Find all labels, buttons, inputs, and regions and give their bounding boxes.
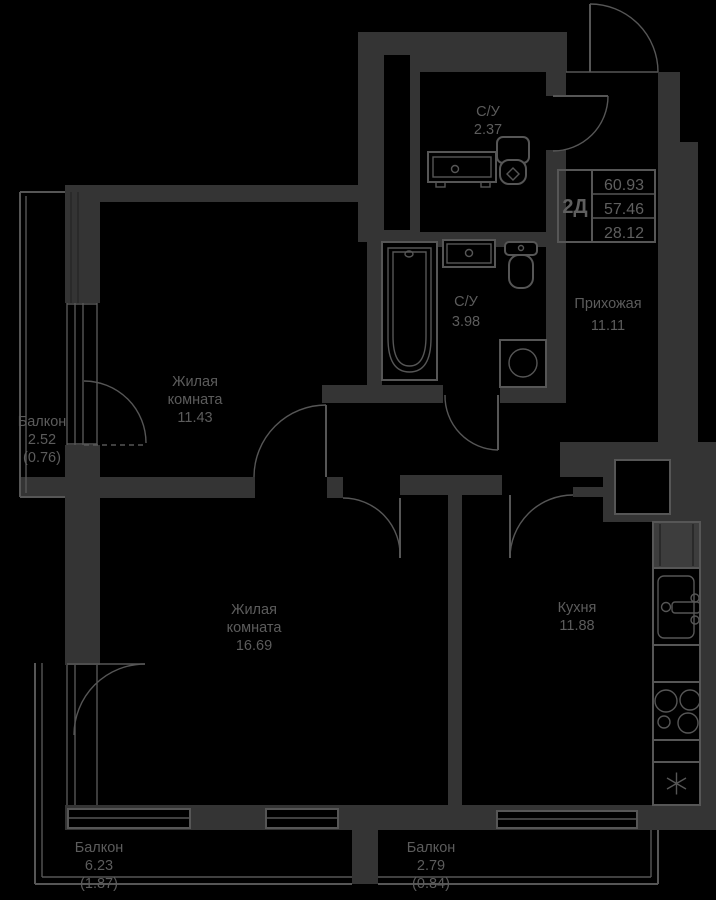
area-living: 57.46 [604,201,644,218]
wc-small-fixtures [428,137,529,187]
room-label-hallway: Прихожая 11.11 [574,296,641,334]
room-label-balcony-left: Балкон 2.52 (0.76) [18,414,67,466]
entry-door [566,4,658,72]
svg-text:6.23: 6.23 [85,858,113,874]
room-label-wc-small: С/У 2.37 [474,104,502,138]
area-total: 60.93 [604,177,644,194]
window-living2-right [266,809,338,828]
floor-plan: 2Д 60.93 57.46 28.12 С/У 2.37 С/У 3.98 П… [0,0,716,900]
bathtub [382,242,437,380]
stove [653,682,700,740]
svg-text:(0.76): (0.76) [23,450,61,466]
washing-machine [500,340,546,387]
svg-text:С/У: С/У [454,294,479,310]
fridge [653,762,700,805]
svg-text:Кухня: Кухня [558,600,597,616]
room-label-wc-big: С/У 3.98 [452,294,480,330]
sink-wc-big [443,240,495,267]
svg-text:Жилая: Жилая [172,374,218,390]
kitchen-sink [653,568,700,645]
svg-text:(1.87): (1.87) [80,876,118,892]
svg-text:16.69: 16.69 [236,638,272,654]
room-label-balcony-bottom-right: Балкон 2.79 (0.84) [407,840,456,892]
wall-duct-void [384,55,410,230]
room-label-kitchen: Кухня 11.88 [558,600,597,634]
kitchen-counter-2 [653,740,700,762]
vanity-sink [428,152,496,187]
room-label-balcony-bottom-left: Балкон 6.23 (1.87) [75,840,124,892]
room-label-living2: Жилая комната 16.69 [227,602,283,654]
svg-text:3.98: 3.98 [452,314,480,330]
walls [20,32,716,884]
window-living1-balcony [65,303,100,445]
svg-text:11.88: 11.88 [559,618,594,634]
floor-plan-canvas: 2Д 60.93 57.46 28.12 С/У 2.37 С/У 3.98 П… [0,0,716,900]
door-kitchen [510,495,573,558]
door-living2 [343,498,400,558]
svg-text:2.37: 2.37 [474,122,502,138]
window-kitchen [497,811,637,828]
svg-text:2.52: 2.52 [28,432,56,448]
window-living2-balcony-door-section [65,664,145,805]
toilet-big [505,242,537,288]
svg-text:комната: комната [227,620,283,636]
apartment-info-box: 2Д 60.93 57.46 28.12 [558,170,655,242]
svg-text:Балкон: Балкон [75,840,124,856]
dishwasher [653,522,700,568]
window-living2-left [68,809,190,828]
door-wc-big [445,395,498,450]
svg-text:Жилая: Жилая [231,602,277,618]
area-kitchen: 28.12 [604,225,644,242]
svg-text:Балкон: Балкон [407,840,456,856]
ventilation-shaft [615,460,670,514]
room-label-living1: Жилая комната 11.43 [168,374,224,426]
kitchen-fixtures [653,522,700,805]
door-living1 [254,405,326,477]
svg-text:С/У: С/У [476,104,501,120]
svg-text:(0.84): (0.84) [412,876,450,892]
svg-text:комната: комната [168,392,224,408]
kitchen-counter-1 [653,645,700,682]
toilet-small [497,137,529,184]
svg-text:11.43: 11.43 [177,410,212,426]
svg-text:Прихожая: Прихожая [574,296,641,312]
door-wc-small [553,96,608,151]
svg-text:Балкон: Балкон [18,414,67,430]
svg-text:2.79: 2.79 [417,858,445,874]
apartment-type-label: 2Д [562,196,587,218]
svg-text:11.11: 11.11 [591,318,625,334]
